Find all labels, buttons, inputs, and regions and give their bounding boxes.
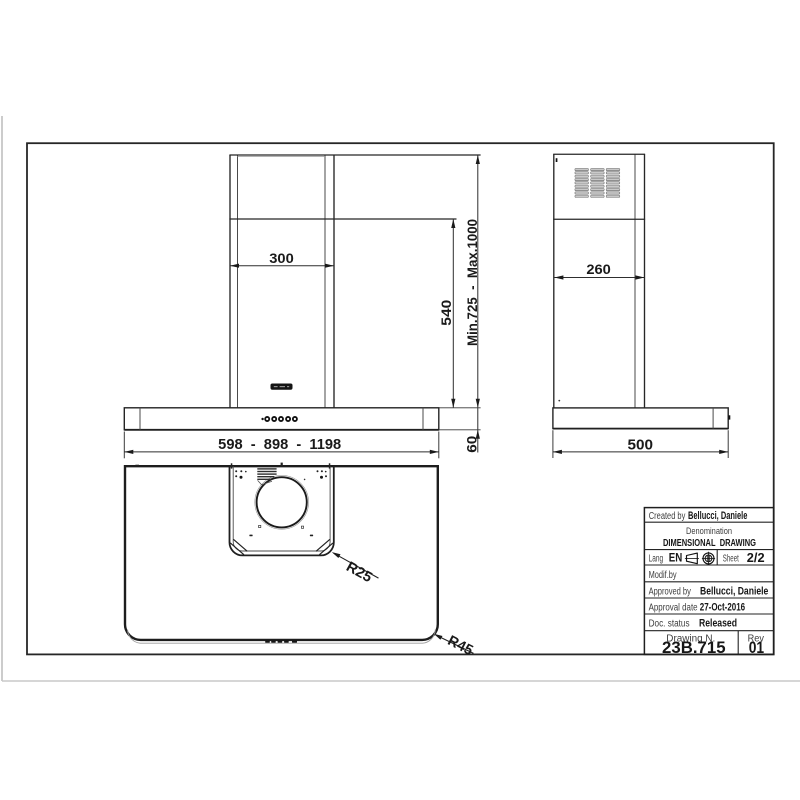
- svg-text:Released: Released: [699, 618, 737, 630]
- svg-text:Bellucci, Daniele: Bellucci, Daniele: [700, 585, 768, 597]
- svg-text:598 - 898 - 1198: 598 - 898 - 1198: [218, 437, 341, 453]
- svg-text:2/2: 2/2: [747, 550, 765, 565]
- svg-text:EN: EN: [669, 553, 683, 565]
- svg-text:23B.715: 23B.715: [662, 639, 726, 657]
- svg-text:60: 60: [464, 436, 479, 453]
- svg-text:Approved by: Approved by: [649, 586, 691, 597]
- svg-text:01: 01: [749, 639, 764, 657]
- svg-text:Denomination: Denomination: [686, 526, 732, 537]
- svg-text:Modif.by: Modif.by: [649, 570, 677, 581]
- svg-text:500: 500: [628, 438, 654, 454]
- svg-text:Min.725 - Max.1000: Min.725 - Max.1000: [465, 219, 480, 346]
- svg-text:Created by: Created by: [649, 511, 686, 522]
- svg-text:540: 540: [439, 300, 454, 326]
- svg-text:Lang: Lang: [649, 553, 664, 564]
- svg-text:Doc. status: Doc. status: [649, 619, 690, 630]
- svg-text:Bellucci, Daniele: Bellucci, Daniele: [688, 510, 747, 522]
- svg-text:Sheet: Sheet: [723, 553, 739, 564]
- svg-text:260: 260: [586, 262, 611, 277]
- svg-text:300: 300: [269, 251, 294, 266]
- svg-text:Approval date: Approval date: [649, 603, 698, 614]
- svg-text:DIMENSIONAL DRAWING: DIMENSIONAL DRAWING: [663, 537, 756, 549]
- svg-text:27-Oct-2016: 27-Oct-2016: [700, 602, 745, 614]
